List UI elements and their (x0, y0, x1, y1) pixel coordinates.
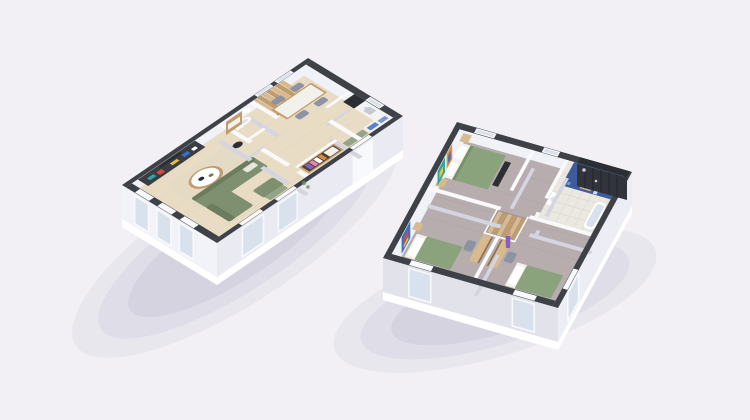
floorplan-canvas (0, 0, 750, 420)
shower-head (582, 168, 586, 172)
floorplan-render (0, 0, 750, 420)
person-figure (505, 230, 510, 248)
shower-control (595, 180, 598, 183)
